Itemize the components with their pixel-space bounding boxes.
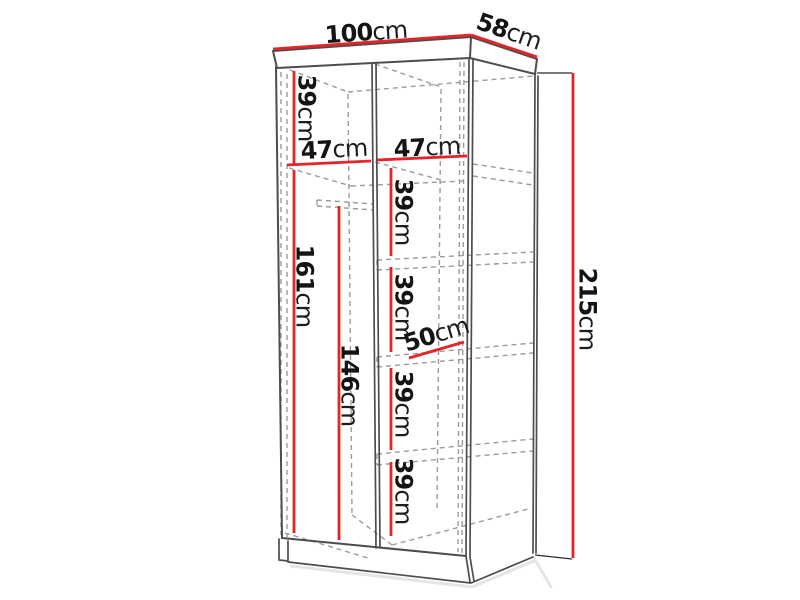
right-shelf-2-lines [377, 343, 533, 367]
dim-label-right-shelf-3: 39cm [390, 371, 418, 438]
dim-label-left-width: 47cm [300, 134, 368, 165]
front-right-corner-edge [466, 58, 473, 556]
dim-label-left-height: 161cm [291, 245, 319, 328]
extension-lines [535, 73, 572, 559]
center-partition [372, 63, 380, 548]
dim-label-right-width: 47cm [393, 132, 461, 163]
dim-label-right-shelf-4: 39cm [390, 458, 418, 525]
shadow-line [291, 558, 551, 587]
dim-label-height: 215cm [574, 268, 602, 351]
hanging-rod [317, 200, 374, 210]
back-right-edge [533, 74, 538, 553]
dim-label-top-shelf-height: 39cm [293, 75, 321, 142]
dim-label-rod-height: 146cm [336, 344, 364, 427]
dim-label-width: 100cm [324, 16, 408, 50]
dimension-labels: 100cm 58cm 39cm 47cm 47cm 161cm 146cm 39… [291, 7, 602, 524]
dim-label-right-shelf-1: 39cm [390, 179, 418, 246]
wardrobe-dimension-diagram: 100cm 58cm 39cm 47cm 47cm 161cm 146cm 39… [0, 0, 800, 600]
ground-shadow [291, 558, 551, 587]
right-shelf-1-lines [377, 252, 533, 270]
height-extension-bottom [535, 555, 572, 559]
